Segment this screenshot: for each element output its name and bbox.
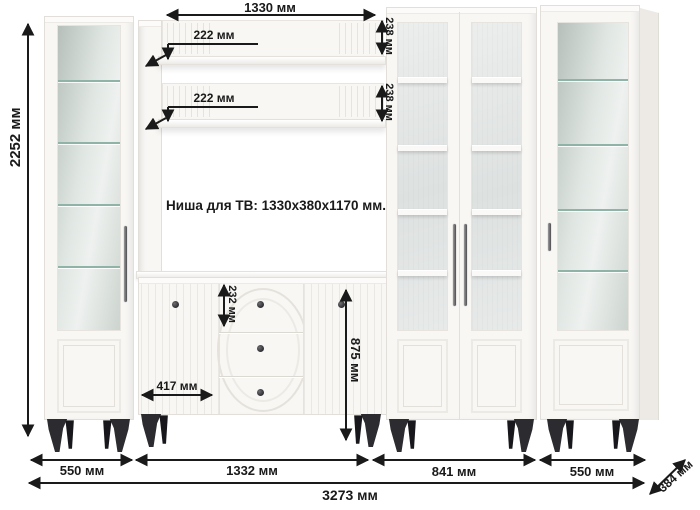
glass-shelf-line: [558, 270, 628, 272]
glass-shelf-line: [558, 144, 628, 146]
leg: [506, 419, 534, 452]
middle-right-lower-panel: [471, 339, 522, 413]
glass-shelf-line: [58, 204, 120, 206]
dim-total-width-label: 3273 мм: [285, 488, 415, 503]
knob: [257, 389, 264, 396]
drawer-divider: [219, 332, 303, 333]
dim-left-cabinet-width-label: 550 мм: [32, 464, 132, 478]
knob: [257, 301, 264, 308]
dim-door-width-label: 417 мм: [141, 380, 213, 393]
cabinet-shelf: [398, 270, 447, 276]
middle-right-handle: [464, 224, 467, 306]
leg: [141, 414, 169, 447]
dim-niche-width-label: 1330 мм: [205, 1, 335, 15]
shelf-fluting: [339, 86, 381, 117]
knob: [172, 301, 179, 308]
leg: [353, 414, 381, 447]
dim-middle-cabinets-width-label: 841 мм: [394, 465, 514, 479]
dim-tv-stand-width-label: 1332 мм: [192, 464, 312, 478]
dim-shelf-height-top-label: 238 мм: [383, 9, 395, 63]
glass-shelf-line: [558, 79, 628, 81]
dim-shelf-height-bottom-label: 238 мм: [383, 75, 395, 129]
left-cabinet-lower-panel: [57, 339, 121, 413]
leg: [611, 419, 639, 452]
tv-stand-right-door: [303, 284, 388, 414]
left-display-cabinet: [44, 16, 134, 420]
right-cabinet-lower-panel: [553, 339, 629, 411]
knob: [338, 301, 345, 308]
wall-shelf-bottom-board: [158, 119, 386, 128]
middle-left-lower-panel: [397, 339, 448, 413]
right-display-cabinet: [540, 5, 640, 420]
dim-total-height-label: 2252 мм: [8, 97, 25, 177]
drawer-divider: [219, 376, 303, 377]
middle-left-glass-door: [397, 22, 448, 331]
dim-stand-height-label: 875 мм: [348, 330, 362, 390]
cabinet-shelf: [398, 77, 447, 83]
right-cabinet-glass-door: [557, 22, 629, 331]
leg: [389, 419, 417, 452]
cabinet-shelf: [398, 145, 447, 151]
leg: [47, 419, 75, 452]
left-cabinet-handle: [124, 226, 127, 302]
tv-niche-note: Ниша для ТВ: 1330х380х1170 мм.: [164, 199, 388, 214]
right-cabinet-handle: [548, 223, 551, 251]
knob: [257, 345, 264, 352]
cabinet-shelf: [398, 209, 447, 215]
glass-shelf-line: [58, 80, 120, 82]
dim-depth-label: 384 мм: [649, 451, 700, 502]
cabinet-shelf: [472, 270, 521, 276]
dim-shelf-depth-bottom-label: 222 мм: [170, 92, 258, 105]
glass-shelf-line: [58, 266, 120, 268]
tv-stand-left-door: [141, 284, 220, 414]
middle-left-handle: [453, 224, 456, 306]
glass-shelf-line: [558, 209, 628, 211]
glass-shelf-line: [58, 142, 120, 144]
cabinet-shelf: [472, 77, 521, 83]
leg: [547, 419, 575, 452]
left-cabinet-glass-door: [57, 25, 121, 331]
cabinet-shelf: [472, 145, 521, 151]
furniture-dimension-diagram: 2252 мм 1330 мм 222 мм 222 мм 238 мм 238…: [0, 0, 700, 510]
middle-bookcase: [386, 7, 537, 420]
leg: [102, 419, 130, 452]
cabinet-shelf: [472, 209, 521, 215]
shelf-fluting: [339, 23, 381, 54]
wall-shelf-top-board: [158, 56, 386, 65]
middle-right-glass-door: [471, 22, 522, 331]
door-split-line: [459, 12, 460, 419]
dim-shelf-depth-top-label: 222 мм: [170, 29, 258, 42]
right-cabinet-side-face: [640, 8, 659, 420]
dim-right-cabinet-width-label: 550 мм: [537, 465, 647, 479]
dim-drawer-height-label: 232 мм: [226, 278, 238, 330]
